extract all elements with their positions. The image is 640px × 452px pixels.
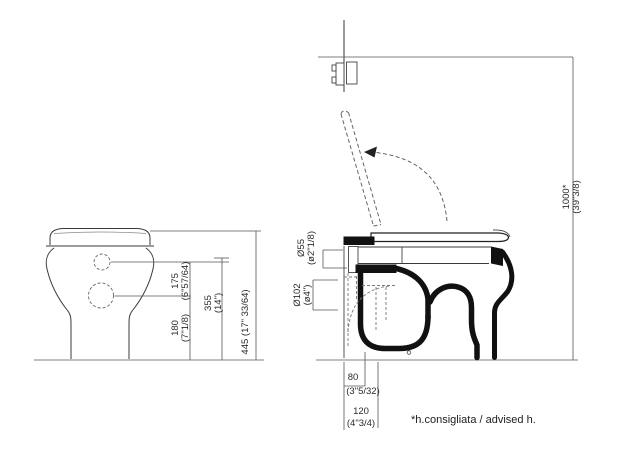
lid-rotation-arc bbox=[376, 153, 447, 222]
dim-80-mm: 80 bbox=[348, 373, 359, 383]
dim-180-label: 180 (7"1/8) bbox=[171, 314, 191, 342]
seat-profile bbox=[371, 233, 509, 242]
side-view bbox=[313, 20, 578, 430]
dim-355-inch: (14") bbox=[214, 293, 224, 313]
advised-height-footnote: *h.consigliata / advised h. bbox=[411, 414, 536, 426]
dim-120-inch-label: (4"3/4) bbox=[347, 419, 375, 429]
dim-180-inch: (7"1/8) bbox=[181, 314, 191, 342]
front-view bbox=[34, 229, 264, 361]
rim-front-section bbox=[491, 247, 503, 267]
front-hole-large bbox=[89, 283, 114, 308]
dim-55-label: Ø55 (ø2"1/8) bbox=[297, 231, 317, 265]
front-hole-small bbox=[94, 254, 110, 270]
dim-175-inch: (6"57/64) bbox=[181, 262, 191, 301]
dim-120-label: 120 bbox=[353, 407, 369, 417]
dim-175-label: 175 (6"57/64) bbox=[171, 262, 191, 301]
dim-80-label: 80 bbox=[348, 373, 359, 383]
dim-80-inch: (3"5/32) bbox=[346, 387, 379, 397]
front-lid bbox=[50, 229, 150, 246]
dim-1000-inch: (39"3/8) bbox=[572, 180, 582, 213]
dim-355-label: 355 (14") bbox=[204, 293, 224, 313]
dim-445-full: 445 (17" 33/64) bbox=[241, 289, 251, 354]
dim-102-label: Ø102 (ø4") bbox=[293, 283, 313, 306]
section-top-bar bbox=[344, 237, 375, 246]
diameter-brackets bbox=[313, 250, 347, 310]
dim-80-inch-label: (3"5/32) bbox=[346, 387, 379, 397]
hidden-outlet-pipe bbox=[344, 273, 396, 346]
raised-lid-dashed bbox=[341, 111, 381, 226]
dim-120-inch: (4"3/4) bbox=[347, 419, 375, 429]
toilet-installation-drawing: 175 (6"57/64) 180 (7"1/8) 355 (14") 445 … bbox=[0, 0, 640, 452]
dim-102-inch: (ø4") bbox=[303, 283, 313, 306]
front-body-right bbox=[129, 248, 154, 359]
dim-55-inch: (ø2"1/8) bbox=[307, 231, 317, 265]
dim-445-label: 445 (17" 33/64) bbox=[241, 289, 251, 354]
outlet-spigot bbox=[344, 246, 402, 358]
front-body-left bbox=[46, 248, 71, 359]
drawing-linework bbox=[0, 0, 640, 452]
arc-arrowhead-icon bbox=[364, 147, 377, 158]
base-hole-detail bbox=[407, 351, 411, 355]
dim-1000-label: 1000* (39"3/8) bbox=[562, 180, 582, 213]
dim-120-mm: 120 bbox=[353, 407, 369, 417]
